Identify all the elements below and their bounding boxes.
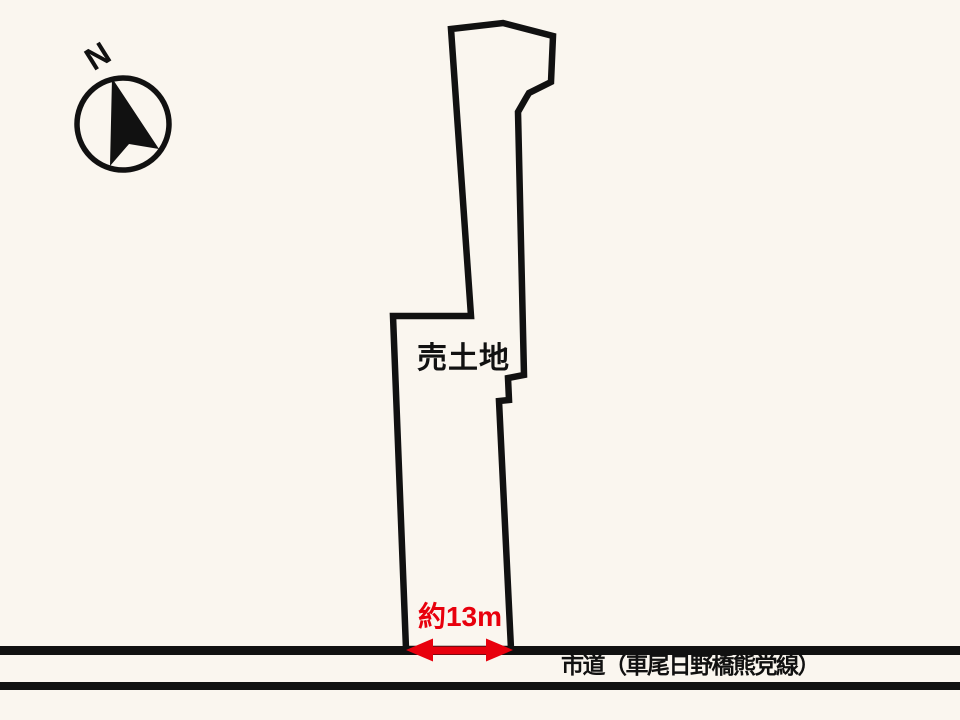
frontage-dimension-label: 約13m [400, 603, 520, 631]
parcel-label: 売土地 [417, 344, 510, 374]
compass-icon [77, 78, 169, 170]
dimension-arrow-shaft [424, 647, 494, 655]
plot-diagram-canvas: N 売土地 約13m 市道（車尾日野橋熊党線） [0, 0, 960, 720]
dimension-arrow-left-head [406, 639, 433, 662]
dimension-arrow [406, 639, 513, 662]
road-name-label: 市道（車尾日野橋熊党線） [561, 654, 819, 677]
parcel-outline [393, 23, 553, 649]
